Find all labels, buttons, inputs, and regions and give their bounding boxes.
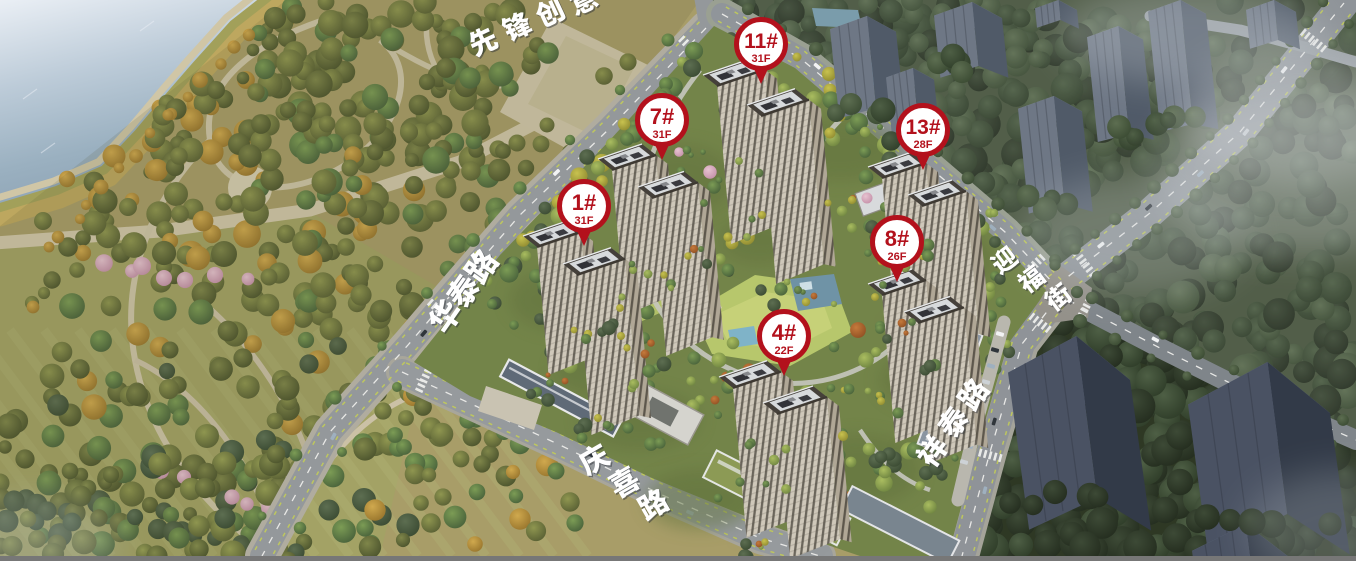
svg-text:13#: 13# [905,116,940,139]
svg-text:31F: 31F [752,53,771,65]
svg-text:1#: 1# [572,190,596,215]
svg-text:7#: 7# [650,104,674,129]
svg-text:4#: 4# [772,320,796,345]
svg-text:31F: 31F [653,129,672,141]
svg-text:28F: 28F [914,139,933,151]
svg-text:22F: 22F [775,345,794,357]
svg-text:26F: 26F [888,251,907,263]
svg-text:31F: 31F [575,215,594,227]
svg-text:11#: 11# [744,30,778,53]
svg-text:8#: 8# [885,226,909,251]
